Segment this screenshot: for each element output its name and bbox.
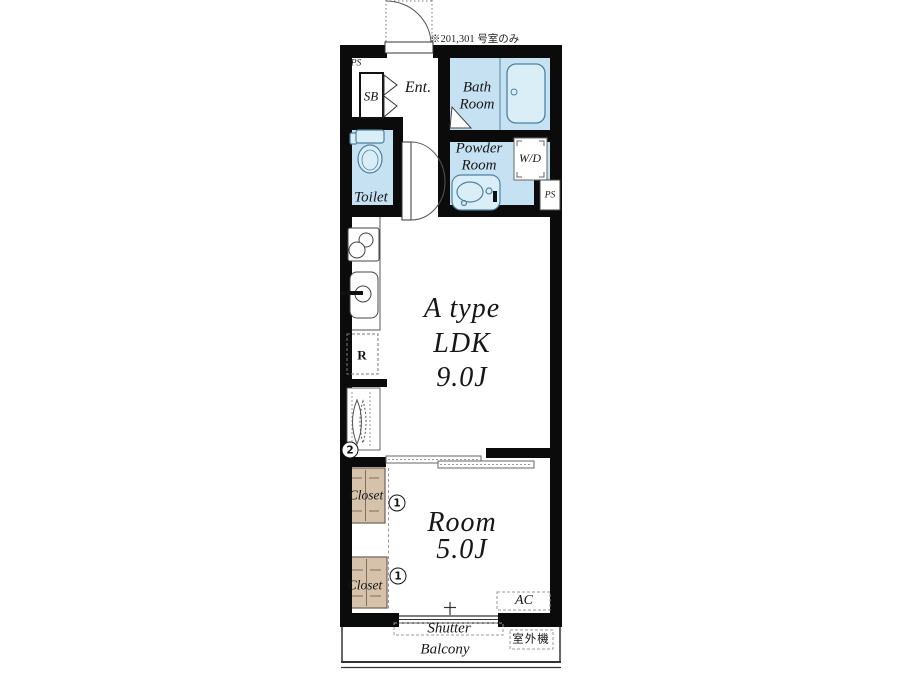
washer-dryer-label: W/D [519,152,541,164]
ps-top-label: PS [351,59,362,69]
entrance-label: Ent. [405,80,431,96]
side-window-symbol [347,388,380,450]
outdoor-unit-label: 室外機 [512,634,550,646]
note-text: ※201,301 号室のみ [430,31,519,46]
stove-icon [348,228,379,261]
room-size-label: 5.0J [436,536,487,564]
vanity-sink-icon [452,175,500,210]
ldk-size-label: 9.0J [436,364,487,392]
folding-door-icon [384,96,397,117]
powder-room-label-2: Room [462,159,497,174]
circled-number-closet-lower: 1 [390,568,407,585]
closet-upper-label: Closet [349,488,384,502]
closet-lower-label: Closet [348,578,383,592]
circled-number-closet-upper: 1 [389,495,406,512]
entry-door [385,0,433,53]
balcony-label: Balcony [420,643,469,658]
shutter-label: Shutter [427,622,470,637]
toilet-label: Toilet [354,191,388,206]
entry-door-arc [386,1,431,44]
shoe-box-label: SB [364,90,378,103]
entry-door-leaf [385,42,433,53]
ldk-label: LDK [433,330,490,358]
powder-room-label-1: Powder [456,142,503,157]
room-label: Room [427,509,496,537]
circled-number-window: 2 [342,442,359,459]
refrigerator-label: R [357,349,366,362]
ac-label: AC [515,594,533,608]
bath-room-label-1: Bath [463,81,491,96]
floor-plan: ※201,301 号室のみ PS SB Ent. Bath Room Toile… [0,0,900,675]
folding-door-icon [384,75,397,95]
unit-type-label: A type [424,295,500,323]
bath-room-label-2: Room [460,98,495,113]
ps-mid-label: PS [545,191,556,201]
